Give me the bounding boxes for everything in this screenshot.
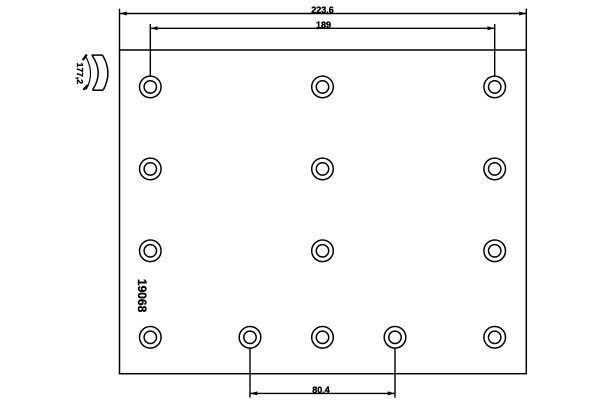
svg-text:189: 189	[316, 20, 331, 30]
svg-text:19068: 19068	[135, 279, 149, 313]
svg-text:177,2: 177,2	[75, 63, 85, 85]
svg-text:80.4: 80.4	[312, 385, 330, 395]
svg-text:223.6: 223.6	[311, 5, 334, 15]
